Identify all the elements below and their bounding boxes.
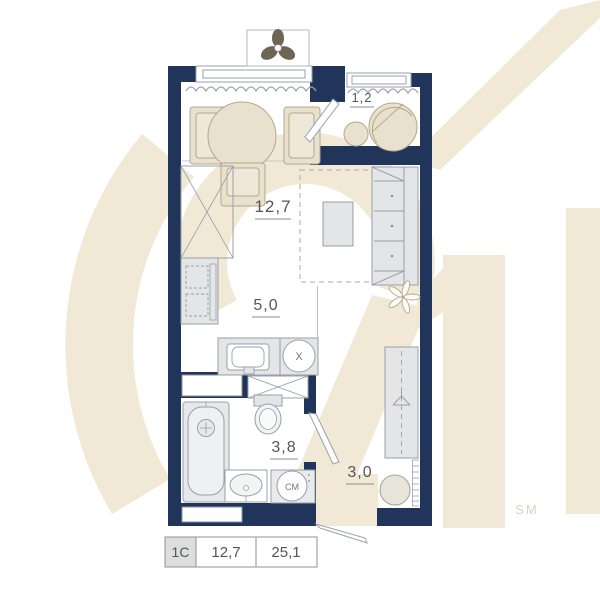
shaft-upper [182,375,242,396]
balcony-side-table [344,122,368,146]
dining-chair-bottom-seat [227,168,259,196]
kitchen-tall-unit [181,258,218,324]
hallway-furniture [380,347,419,506]
floor-plan-svg: SM [0,0,600,600]
washing-machine: СМ [271,470,315,503]
wall-topleft-stub [168,66,198,82]
bathroom-sink [225,470,267,502]
kitchen-area-label: 5,0 [253,297,278,314]
kitchen-sink [227,344,269,370]
balcony-window [347,73,411,87]
ceiling-fan-icon [247,29,309,66]
wall-right [420,73,432,526]
windows [196,66,411,87]
shaft-lower [182,507,242,522]
toilet [254,395,282,434]
wall-under-balcony [310,146,432,165]
balcony-area-label: 1,2 [351,90,372,105]
loggia-window [196,66,312,82]
washing-machine-label: СМ [285,482,299,492]
bathroom-area-label: 3,8 [271,439,296,456]
kitchen-faucet [244,367,254,374]
radiator-comb [412,460,419,506]
legend-unit-type: 1C [172,544,190,560]
door-entrance [316,524,367,543]
balcony-armchair [369,103,417,151]
hallway-area-label: 3,0 [347,464,372,481]
wall-bottom-right [377,508,432,526]
curtains [186,87,418,93]
watermark-digit-1-bar [443,255,505,528]
loggia-curtain [186,87,316,91]
sofa [372,167,418,285]
hall-wardrobe [385,347,418,458]
balcony-furniture [344,103,417,151]
kitchen-furniture: X [181,258,318,375]
watermark-right-bar [566,208,600,514]
wall-mid-top [310,66,345,102]
wall-left [168,66,181,526]
legend-table: 1C 12,7 25,1 [165,537,317,567]
bathtub [183,402,229,502]
living-area-label: 12,7 [254,197,291,216]
watermark-sm-text: SM [515,502,539,517]
watermark-topright-band [408,0,600,170]
floor-plan-page: SM [0,0,600,600]
legend-total-area: 25,1 [271,544,300,561]
pouf [380,475,410,505]
dining-table [208,102,276,170]
fan-hub [275,45,282,52]
legend-living-area: 12,7 [211,544,240,561]
nightstand [323,202,353,246]
hob-label: X [295,351,303,363]
